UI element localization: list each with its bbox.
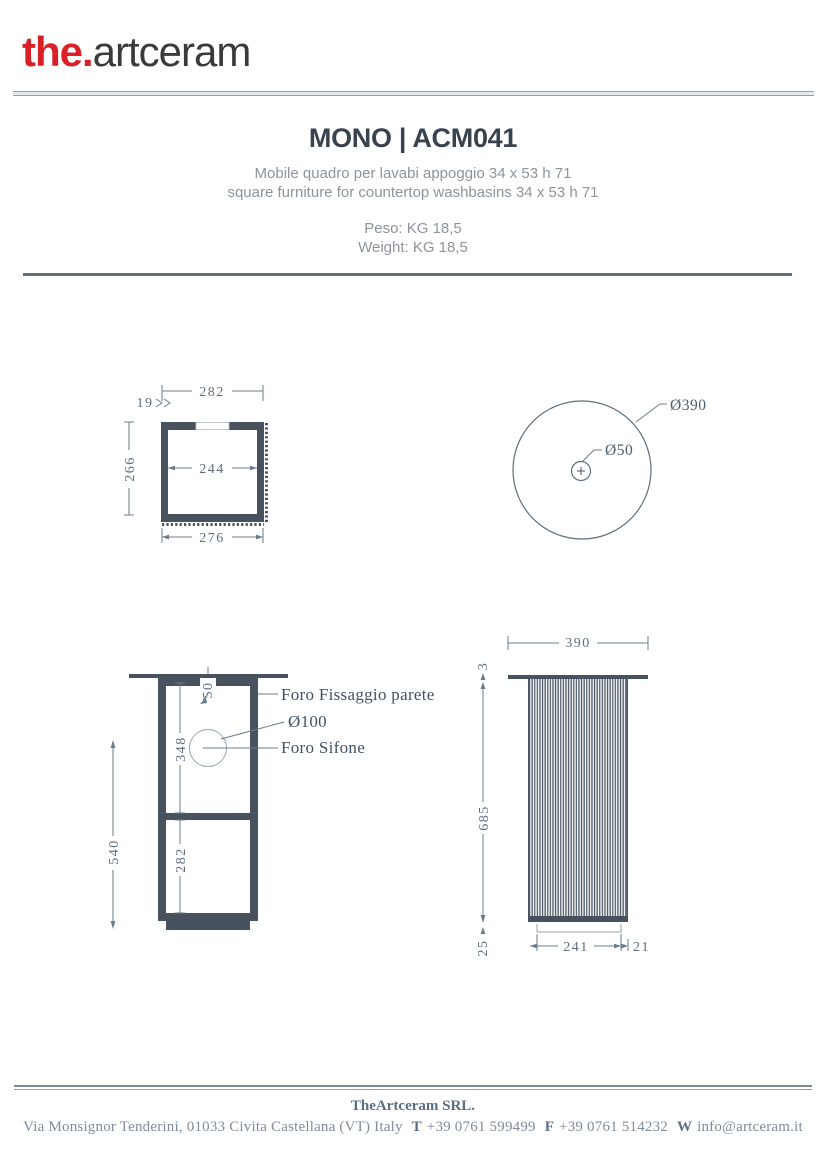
dim-total-height: 540: [107, 740, 122, 929]
footer-web-label: W: [677, 1119, 692, 1135]
footer-fax-label: F: [545, 1119, 554, 1135]
dim-depth: 266: [121, 422, 138, 515]
product-description-it: Mobile quadro per lavabi appoggio 34 x 5…: [0, 164, 826, 183]
product-title: MONO | ACM041: [0, 124, 826, 152]
cabinet-side-structure: [508, 675, 648, 932]
title-block: MONO | ACM041 Mobile quadro per lavabi a…: [0, 124, 826, 257]
dim-bottom-width: 241: [530, 934, 621, 955]
dim-inner-width-value: 244: [199, 462, 225, 477]
drawing-cabinet-top-view: 282 19 266 244: [100, 368, 300, 563]
dim-upper-height-value: 348: [174, 736, 189, 762]
dim-top-offset-value: 50: [201, 682, 216, 699]
footer-address-text: Via Monsignor Tenderini, 01033 Civita Ca…: [23, 1119, 403, 1135]
footer-company: TheArtceram SRL.: [0, 1098, 826, 1115]
drawing-cabinet-side-view: 390 3 685 25: [458, 618, 722, 963]
leader-outer-diameter: [636, 404, 667, 422]
dim-bottom-width-value: 241: [563, 940, 589, 955]
dim-plinth-height-value: 25: [476, 940, 491, 957]
dim-lower-height-value: 282: [174, 847, 189, 873]
label-wall-fixing-hole: Foro Fissaggio parete: [258, 685, 435, 704]
drawing-washbasin-top-view: Ø390 Ø50: [494, 383, 722, 555]
dim-side-offset-value: 21: [633, 940, 650, 955]
leader-drain-diameter: [583, 450, 602, 461]
dim-width-value: 390: [565, 636, 591, 651]
dim-width-top-value: 282: [199, 385, 225, 400]
footer-divider: [14, 1085, 812, 1090]
dim-drain-diameter-value: Ø50: [605, 442, 633, 459]
footer-phone-number: +39 0761 599499: [427, 1119, 536, 1135]
dim-wall-thickness: 19: [137, 396, 171, 411]
product-weight-en: Weight: KG 18,5: [0, 238, 826, 257]
footer-phone-label: T: [412, 1119, 422, 1135]
label-hole-diameter-text: Ø100: [288, 712, 327, 731]
section-divider: [23, 273, 792, 276]
product-description-en: square furniture for countertop washbasi…: [0, 183, 826, 202]
dim-height: 685: [477, 682, 492, 923]
dim-side-offset: 21: [622, 939, 651, 955]
label-wall-fixing-text: Foro Fissaggio parete: [281, 685, 435, 704]
dim-width-bottom: 276: [162, 528, 263, 546]
dim-width: 390: [508, 635, 648, 651]
dim-plinth-height: 25: [476, 927, 491, 957]
product-weight-it: Peso: KG 18,5: [0, 219, 826, 238]
footer-contact-line: Via Monsignor Tenderini, 01033 Civita Ca…: [0, 1119, 826, 1136]
dim-total-height-value: 540: [107, 839, 122, 865]
brand-logo-artceram: artceram: [93, 28, 251, 75]
brand-logo-the: the.: [22, 28, 93, 75]
dim-lower-height: 282: [174, 820, 189, 913]
label-hole-diameter: Ø100: [221, 712, 327, 739]
drawing-cabinet-front-section: 50 348 282 540 Foro Fissag: [90, 648, 450, 948]
dim-outer-diameter-value: Ø390: [670, 397, 706, 414]
dim-top-thickness: 3: [476, 662, 491, 680]
cabinet-front-structure: [129, 674, 288, 930]
header-divider: [13, 91, 814, 96]
dim-depth-value: 266: [123, 456, 138, 482]
datasheet-page: the.artceram MONO | ACM041 Mobile quadro…: [0, 0, 826, 1169]
dim-upper-height: 348: [174, 683, 189, 813]
footer-fax-number: +39 0761 514232: [559, 1119, 668, 1135]
dim-height-value: 685: [477, 805, 492, 831]
dim-wall-thickness-value: 19: [137, 396, 154, 411]
dim-top-offset: 50: [200, 667, 216, 704]
plinth-outline: [537, 924, 621, 932]
dim-inner-width: 244: [168, 460, 257, 477]
dim-width-bottom-value: 276: [199, 531, 225, 546]
footer-email: info@artceram.it: [697, 1119, 803, 1135]
label-siphon-hole: Foro Sifone: [203, 738, 365, 757]
dim-top-thickness-value: 3: [476, 662, 491, 671]
basin-outline: [513, 401, 651, 539]
label-siphon-text: Foro Sifone: [281, 738, 365, 757]
brand-logo: the.artceram: [22, 30, 250, 74]
dim-width-top: 282: [162, 383, 263, 401]
